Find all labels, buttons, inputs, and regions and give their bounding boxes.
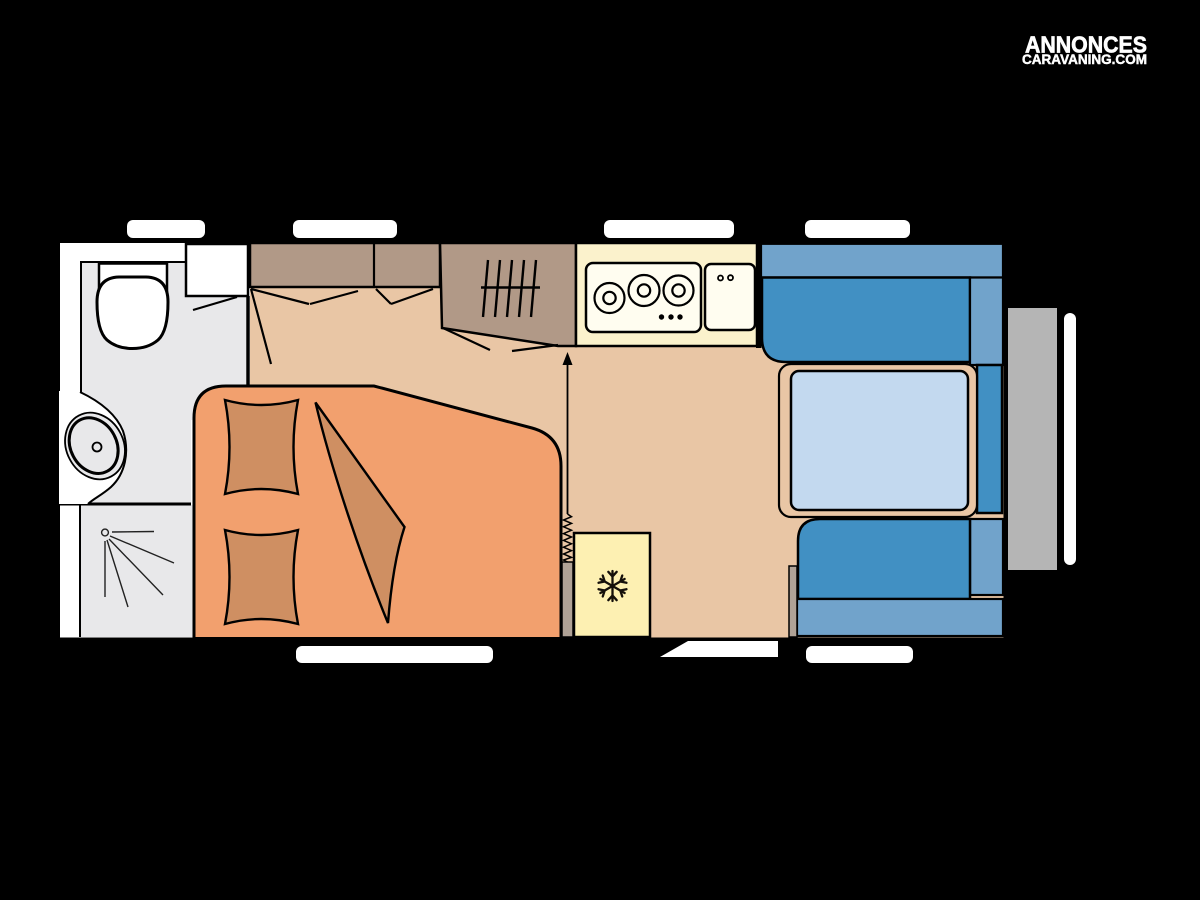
svg-text:CARAVANING.COM: CARAVANING.COM xyxy=(1022,52,1147,67)
